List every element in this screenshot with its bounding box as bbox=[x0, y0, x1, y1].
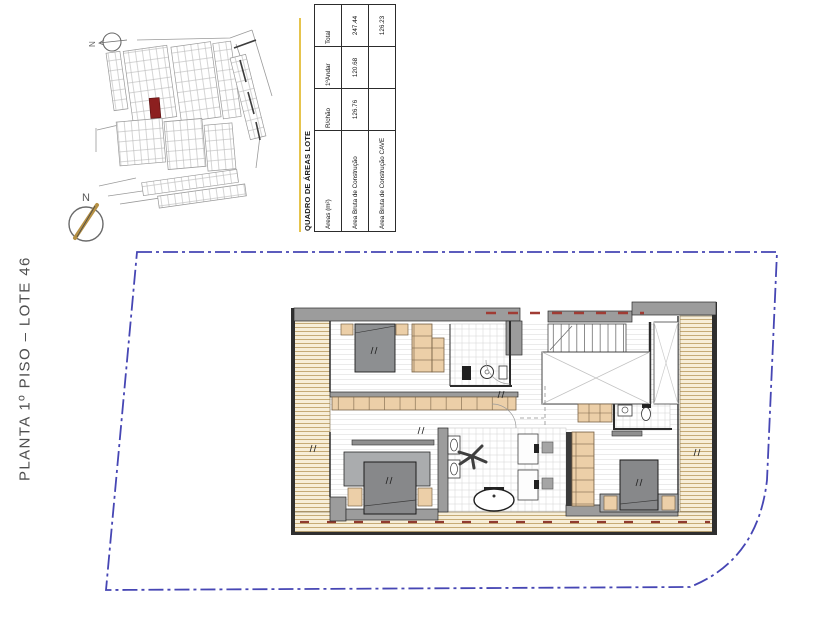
bathtub-icon bbox=[474, 489, 514, 511]
bedroom2-shelf bbox=[352, 440, 434, 445]
row-value: 247.44 bbox=[342, 5, 369, 47]
areas-table-title: QUADRO DE ÁREAS LOTE bbox=[299, 18, 314, 232]
row-value bbox=[369, 47, 396, 89]
wall-top-right bbox=[632, 302, 716, 315]
wall-bottom-L-vert bbox=[330, 497, 346, 521]
deck-right bbox=[680, 316, 714, 512]
row-value: 126.76 bbox=[342, 89, 369, 131]
sheet: N N bbox=[0, 0, 818, 636]
col-header-total: Total bbox=[315, 5, 342, 47]
bedroom2-bed bbox=[364, 462, 416, 514]
wall-outer-left bbox=[291, 308, 295, 535]
row-label: Area Bruta de Construção CAVE bbox=[369, 131, 396, 232]
site-map-compass: N bbox=[88, 33, 127, 51]
col-header-andar: 1ºAndar bbox=[315, 47, 342, 89]
bedroom3-bed bbox=[620, 460, 658, 510]
col-header-rchao: R/chão bbox=[315, 89, 342, 131]
table-row: Area Bruta de Construção CAVE 126.23 bbox=[369, 5, 396, 232]
row-value: 120.68 bbox=[342, 47, 369, 89]
row-value bbox=[369, 89, 396, 131]
deck-left bbox=[294, 320, 330, 512]
nightstand bbox=[604, 496, 617, 510]
toilet-icon bbox=[451, 439, 458, 451]
row-value: 126.23 bbox=[369, 5, 396, 47]
north-label: N bbox=[82, 192, 90, 204]
site-map: N bbox=[88, 30, 272, 208]
bidet-icon bbox=[499, 366, 507, 379]
table-row: Area Bruta de Construção 126.76 120.68 2… bbox=[342, 5, 369, 232]
toilet-icon bbox=[462, 366, 471, 380]
stair-cabinet bbox=[578, 404, 612, 422]
bedroom1-closet bbox=[412, 324, 432, 372]
wall-outer-right bbox=[712, 302, 717, 535]
wall-top-left bbox=[294, 308, 520, 321]
areas-table: QUADRO DE ÁREAS LOTE Areas (m²) R/chão 1… bbox=[299, 18, 393, 232]
closet-stair-side bbox=[654, 322, 678, 404]
bedroom1 bbox=[341, 324, 444, 372]
drawing-canvas: N N bbox=[0, 0, 818, 636]
bedroom1-cabinet-left bbox=[341, 324, 353, 335]
bedroom1-bed bbox=[355, 324, 395, 372]
wardrobe-back bbox=[566, 432, 572, 506]
page-title: PLANTA 1º PISO – LOTE 46 bbox=[12, 243, 38, 495]
corridor-wardrobe bbox=[332, 397, 516, 410]
nightstand bbox=[662, 496, 675, 510]
bedroom1-closet-arm bbox=[432, 338, 444, 372]
floor-plan bbox=[291, 302, 717, 535]
bedroom1-cabinet-right bbox=[396, 324, 408, 335]
nightstand bbox=[348, 488, 362, 506]
site-map-north-label: N bbox=[88, 41, 97, 47]
wall-masterbath-left bbox=[438, 428, 448, 512]
toilet-icon bbox=[642, 408, 651, 421]
stairs bbox=[548, 324, 626, 352]
sink-icon bbox=[618, 405, 632, 416]
north-arrow: N bbox=[69, 192, 103, 241]
nightstand bbox=[418, 488, 432, 506]
stair-void bbox=[542, 352, 650, 404]
wall-outer-bottom bbox=[291, 532, 717, 535]
site-map-highlight-lot bbox=[149, 98, 161, 119]
wall-mid bbox=[330, 392, 518, 397]
bidet-icon bbox=[451, 463, 458, 475]
col-header-areas: Areas (m²) bbox=[315, 131, 342, 232]
bedroom3-wardrobe bbox=[572, 432, 594, 506]
wall-corridor-stub bbox=[506, 321, 522, 355]
areas-table-header-row: Areas (m²) R/chão 1ºAndar Total bbox=[315, 5, 342, 232]
row-label: Area Bruta de Construção bbox=[342, 131, 369, 232]
bedroom3-shelf bbox=[612, 431, 642, 436]
